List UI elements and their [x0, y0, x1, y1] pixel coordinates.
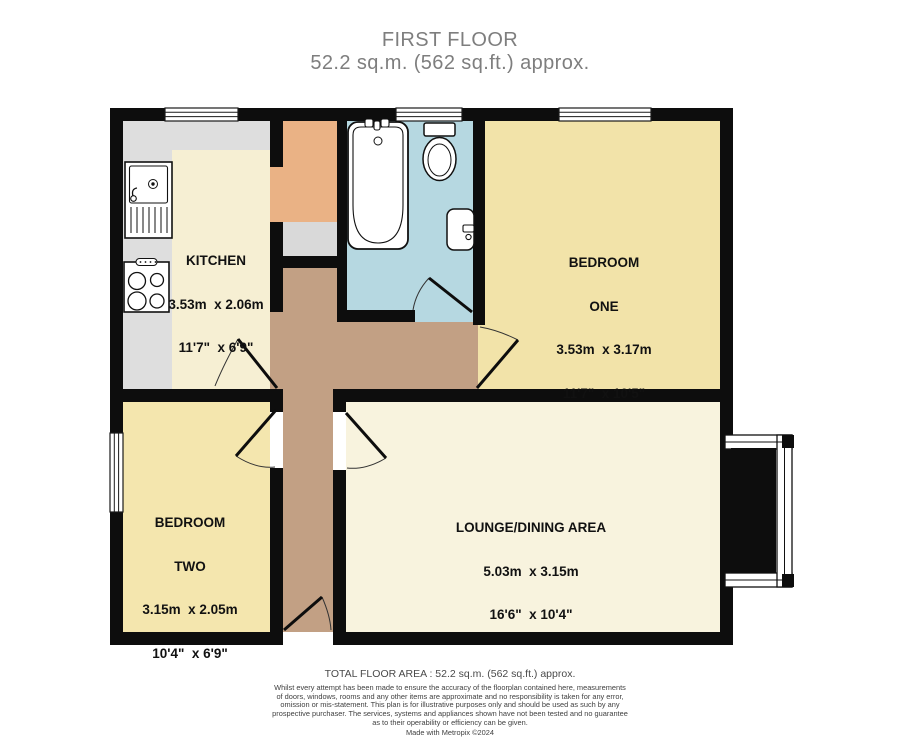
balcony — [725, 435, 794, 587]
balcony-deck — [731, 448, 776, 573]
wall-bedroom-one-left — [473, 121, 485, 325]
bedroom-one-imperial: 11'7" x 10'5" — [504, 387, 704, 402]
hallway-floor-stem — [283, 389, 333, 632]
balcony-post-top — [782, 435, 794, 448]
bedroom-one-label: BEDROOM ONE 3.53m x 3.17m 11'7" x 10'5" — [504, 227, 704, 430]
balcony-post-bottom — [782, 574, 794, 587]
bedroom-two-metric: 3.15m x 2.05m — [90, 603, 290, 618]
wall-bedroom-two-top — [110, 389, 283, 402]
lounge-imperial: 16'6" x 10'4" — [381, 608, 681, 623]
plan-title-line1: FIRST FLOOR — [0, 29, 900, 52]
lounge-label: LOUNGE/DINING AREA 5.03m x 3.15m 16'6" x… — [381, 492, 681, 652]
toilet — [423, 123, 456, 181]
plan-title-line2: 52.2 sq.m. (562 sq.ft.) approx. — [0, 52, 900, 75]
wall-bathroom-left — [337, 121, 347, 322]
wall-lounge-left-stub — [333, 389, 346, 412]
bedroom-one-name2: ONE — [504, 300, 704, 315]
bathtub — [348, 119, 408, 249]
bathroom-sink — [447, 209, 474, 250]
bedroom-one-name: BEDROOM — [504, 256, 704, 271]
kitchen-label: KITCHEN 3.53m x 2.06m 11'7" x 6'9" — [116, 225, 316, 385]
bedroom-two-imperial: 10'4" x 6'9" — [90, 647, 290, 662]
bathroom-window — [396, 108, 462, 121]
bedroom-two-label: BEDROOM TWO 3.15m x 2.05m 10'4" x 6'9" — [90, 487, 290, 690]
disclaimer-line: as to their operability or efficiency ca… — [0, 719, 900, 728]
bedroom-one-window — [559, 108, 651, 121]
total-floor-area: TOTAL FLOOR AREA : 52.2 sq.m. (562 sq.ft… — [0, 668, 900, 680]
lounge-name: LOUNGE/DINING AREA — [381, 521, 681, 536]
wall-bathroom-bottom — [347, 310, 415, 322]
metropix-credit: Made with Metropix ©2024 — [0, 729, 900, 738]
kitchen-window — [165, 108, 238, 121]
footer: TOTAL FLOOR AREA : 52.2 sq.m. (562 sq.ft… — [0, 668, 900, 737]
kitchen-name: KITCHEN — [116, 254, 316, 269]
floorplan-page: FIRST FLOOR 52.2 sq.m. (562 sq.ft.) appr… — [0, 0, 900, 752]
kitchen-metric: 3.53m x 2.06m — [116, 298, 316, 313]
bedroom-two-name2: TWO — [90, 560, 290, 575]
plan-title: FIRST FLOOR 52.2 sq.m. (562 sq.ft.) appr… — [0, 29, 900, 75]
lounge-metric: 5.03m x 3.15m — [381, 565, 681, 580]
bedroom-two-name: BEDROOM — [90, 516, 290, 531]
wall-kitchen-cupboard-upper — [270, 121, 283, 167]
wall-lounge-left — [333, 470, 346, 632]
kitchen-imperial: 11'7" x 6'9" — [116, 341, 316, 356]
bedroom-one-metric: 3.53m x 3.17m — [504, 343, 704, 358]
